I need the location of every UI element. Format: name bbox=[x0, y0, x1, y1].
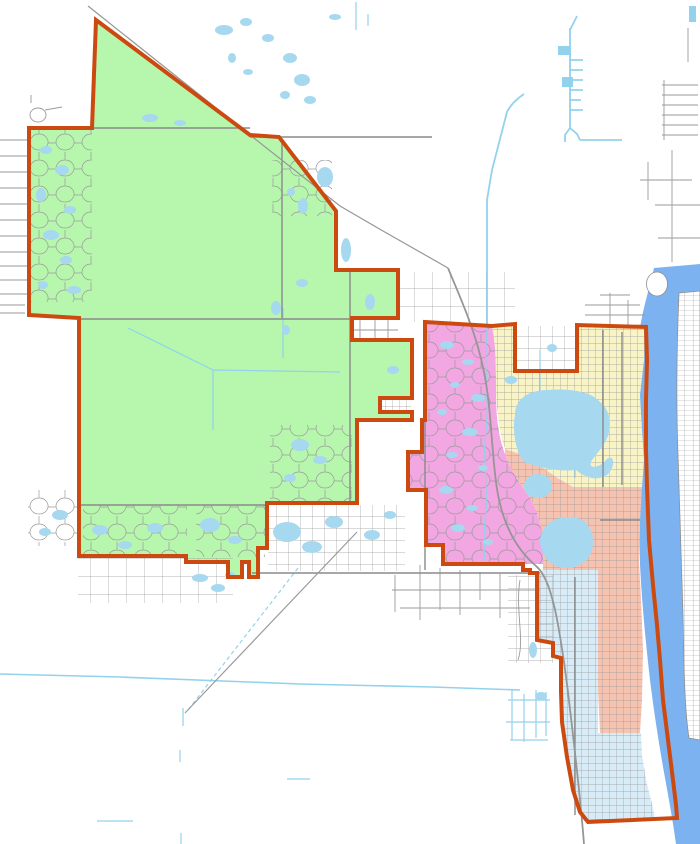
pond bbox=[92, 525, 108, 535]
pond bbox=[211, 584, 225, 592]
pond bbox=[437, 409, 447, 415]
pond bbox=[294, 74, 310, 86]
pond bbox=[243, 69, 253, 75]
pond bbox=[287, 188, 295, 196]
pond bbox=[228, 536, 242, 544]
south-of-green-streets bbox=[78, 558, 233, 603]
pond bbox=[529, 642, 537, 658]
pond bbox=[304, 96, 316, 104]
pond bbox=[547, 344, 557, 352]
pond bbox=[384, 511, 396, 519]
pond bbox=[291, 439, 309, 451]
pond bbox=[271, 301, 281, 315]
pond bbox=[341, 238, 351, 262]
pond bbox=[440, 341, 454, 349]
pond bbox=[52, 510, 68, 520]
pond bbox=[283, 53, 297, 63]
pond bbox=[505, 376, 517, 384]
yellow-notch-streets bbox=[516, 326, 576, 370]
pond bbox=[446, 452, 458, 458]
north-pocket-streets bbox=[400, 272, 515, 322]
pond bbox=[55, 165, 69, 175]
pond bbox=[228, 53, 236, 63]
pond bbox=[365, 294, 375, 310]
district-map[interactable] bbox=[0, 0, 700, 844]
pond bbox=[39, 528, 51, 536]
pond bbox=[524, 474, 552, 498]
canal-basin bbox=[562, 77, 573, 87]
pond bbox=[296, 279, 308, 287]
pond bbox=[451, 524, 465, 532]
pond bbox=[43, 230, 59, 240]
pond bbox=[262, 34, 274, 42]
pond bbox=[142, 114, 158, 122]
pond bbox=[192, 574, 208, 582]
pond bbox=[317, 167, 333, 187]
pond bbox=[298, 198, 308, 214]
pond bbox=[325, 516, 343, 528]
pond bbox=[215, 25, 233, 35]
pond bbox=[329, 14, 341, 20]
outside-southwest-residential bbox=[28, 490, 78, 546]
green-west-residential bbox=[30, 130, 92, 302]
pond bbox=[64, 206, 76, 214]
pond bbox=[302, 541, 322, 553]
pond bbox=[174, 120, 186, 126]
pond bbox=[118, 541, 132, 549]
pond bbox=[462, 428, 478, 436]
pond bbox=[200, 518, 220, 532]
pond bbox=[40, 146, 52, 154]
pond bbox=[240, 18, 252, 26]
pond bbox=[38, 281, 48, 289]
pond bbox=[280, 91, 290, 99]
canal-basin bbox=[558, 46, 571, 55]
pond bbox=[387, 366, 399, 374]
map-canvas[interactable] bbox=[0, 0, 700, 844]
pond bbox=[471, 394, 485, 402]
pond bbox=[67, 286, 81, 294]
pond bbox=[462, 359, 474, 365]
pond bbox=[450, 382, 460, 388]
pond bbox=[439, 486, 453, 494]
pond bbox=[364, 530, 380, 540]
pond bbox=[535, 692, 547, 700]
green-mid-residential bbox=[270, 425, 352, 501]
small-notch-streets bbox=[381, 399, 411, 411]
pond bbox=[273, 522, 301, 542]
pond bbox=[284, 474, 296, 482]
pond bbox=[60, 256, 72, 264]
pond bbox=[147, 523, 163, 533]
pond bbox=[313, 456, 327, 464]
corner-waterway bbox=[689, 6, 696, 22]
pond bbox=[483, 539, 493, 545]
pond bbox=[282, 325, 290, 335]
river-islet bbox=[647, 272, 668, 296]
pond bbox=[478, 465, 488, 471]
pond bbox=[36, 188, 46, 202]
pond bbox=[466, 505, 478, 511]
